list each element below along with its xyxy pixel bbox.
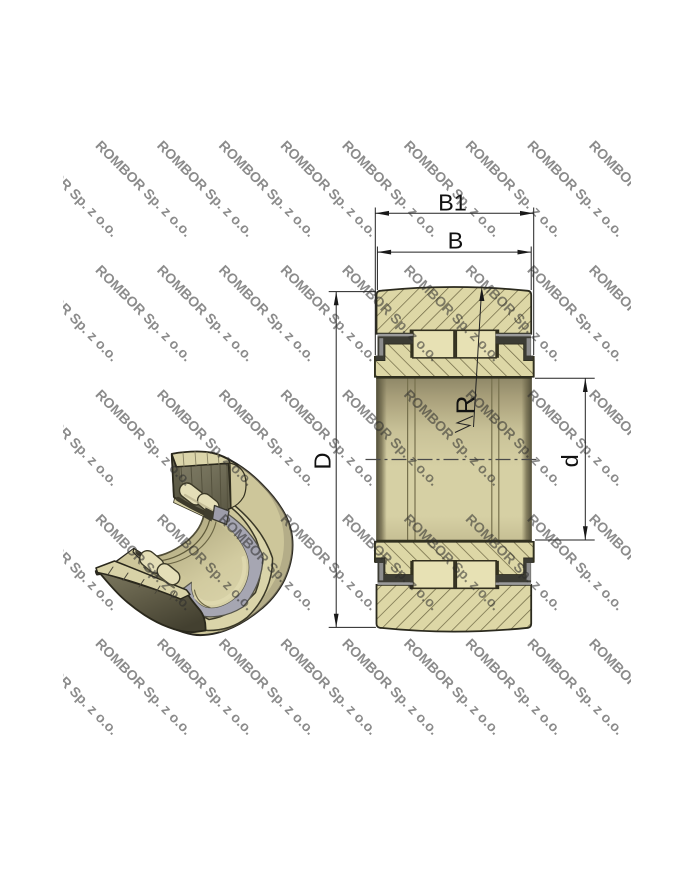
svg-text:B: B	[448, 228, 464, 254]
svg-text:d: d	[557, 454, 583, 467]
svg-text:D: D	[310, 453, 336, 470]
